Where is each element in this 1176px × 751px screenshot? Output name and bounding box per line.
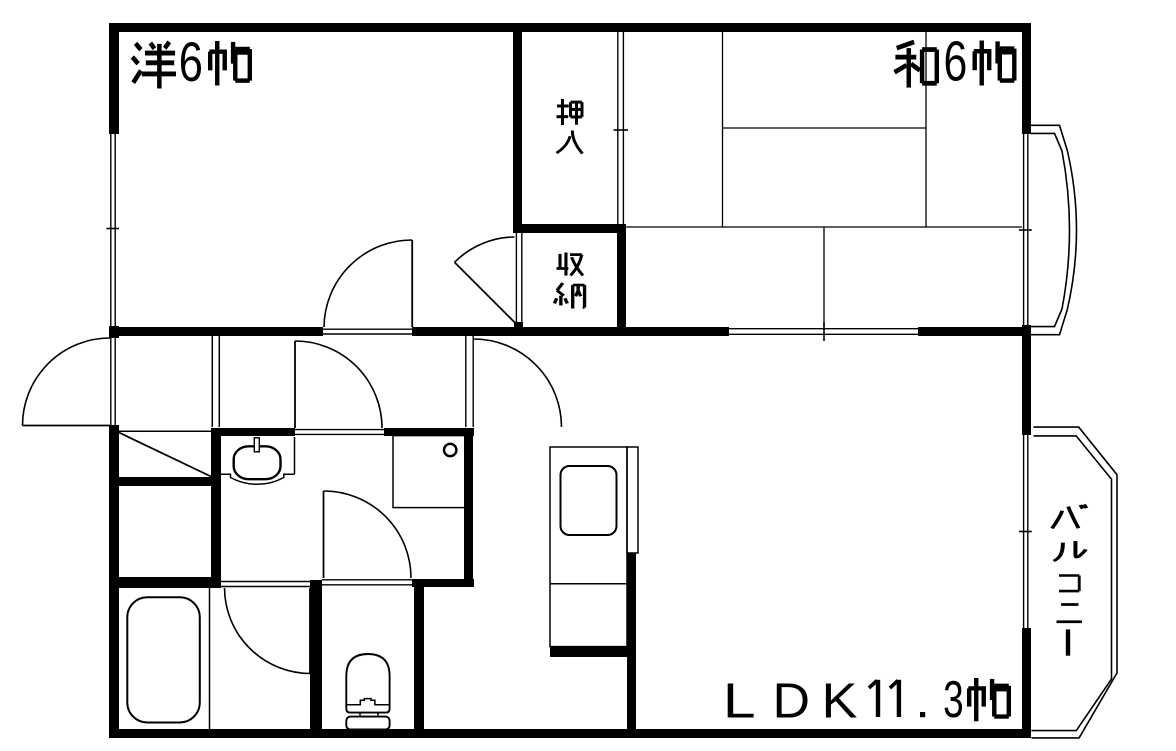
svg-text:3: 3 <box>943 670 964 729</box>
svg-text:D: D <box>773 673 811 728</box>
svg-text:6: 6 <box>179 31 203 93</box>
svg-text:L: L <box>723 674 756 728</box>
svg-text:6: 6 <box>944 29 968 93</box>
svg-text:K: K <box>822 673 858 728</box>
